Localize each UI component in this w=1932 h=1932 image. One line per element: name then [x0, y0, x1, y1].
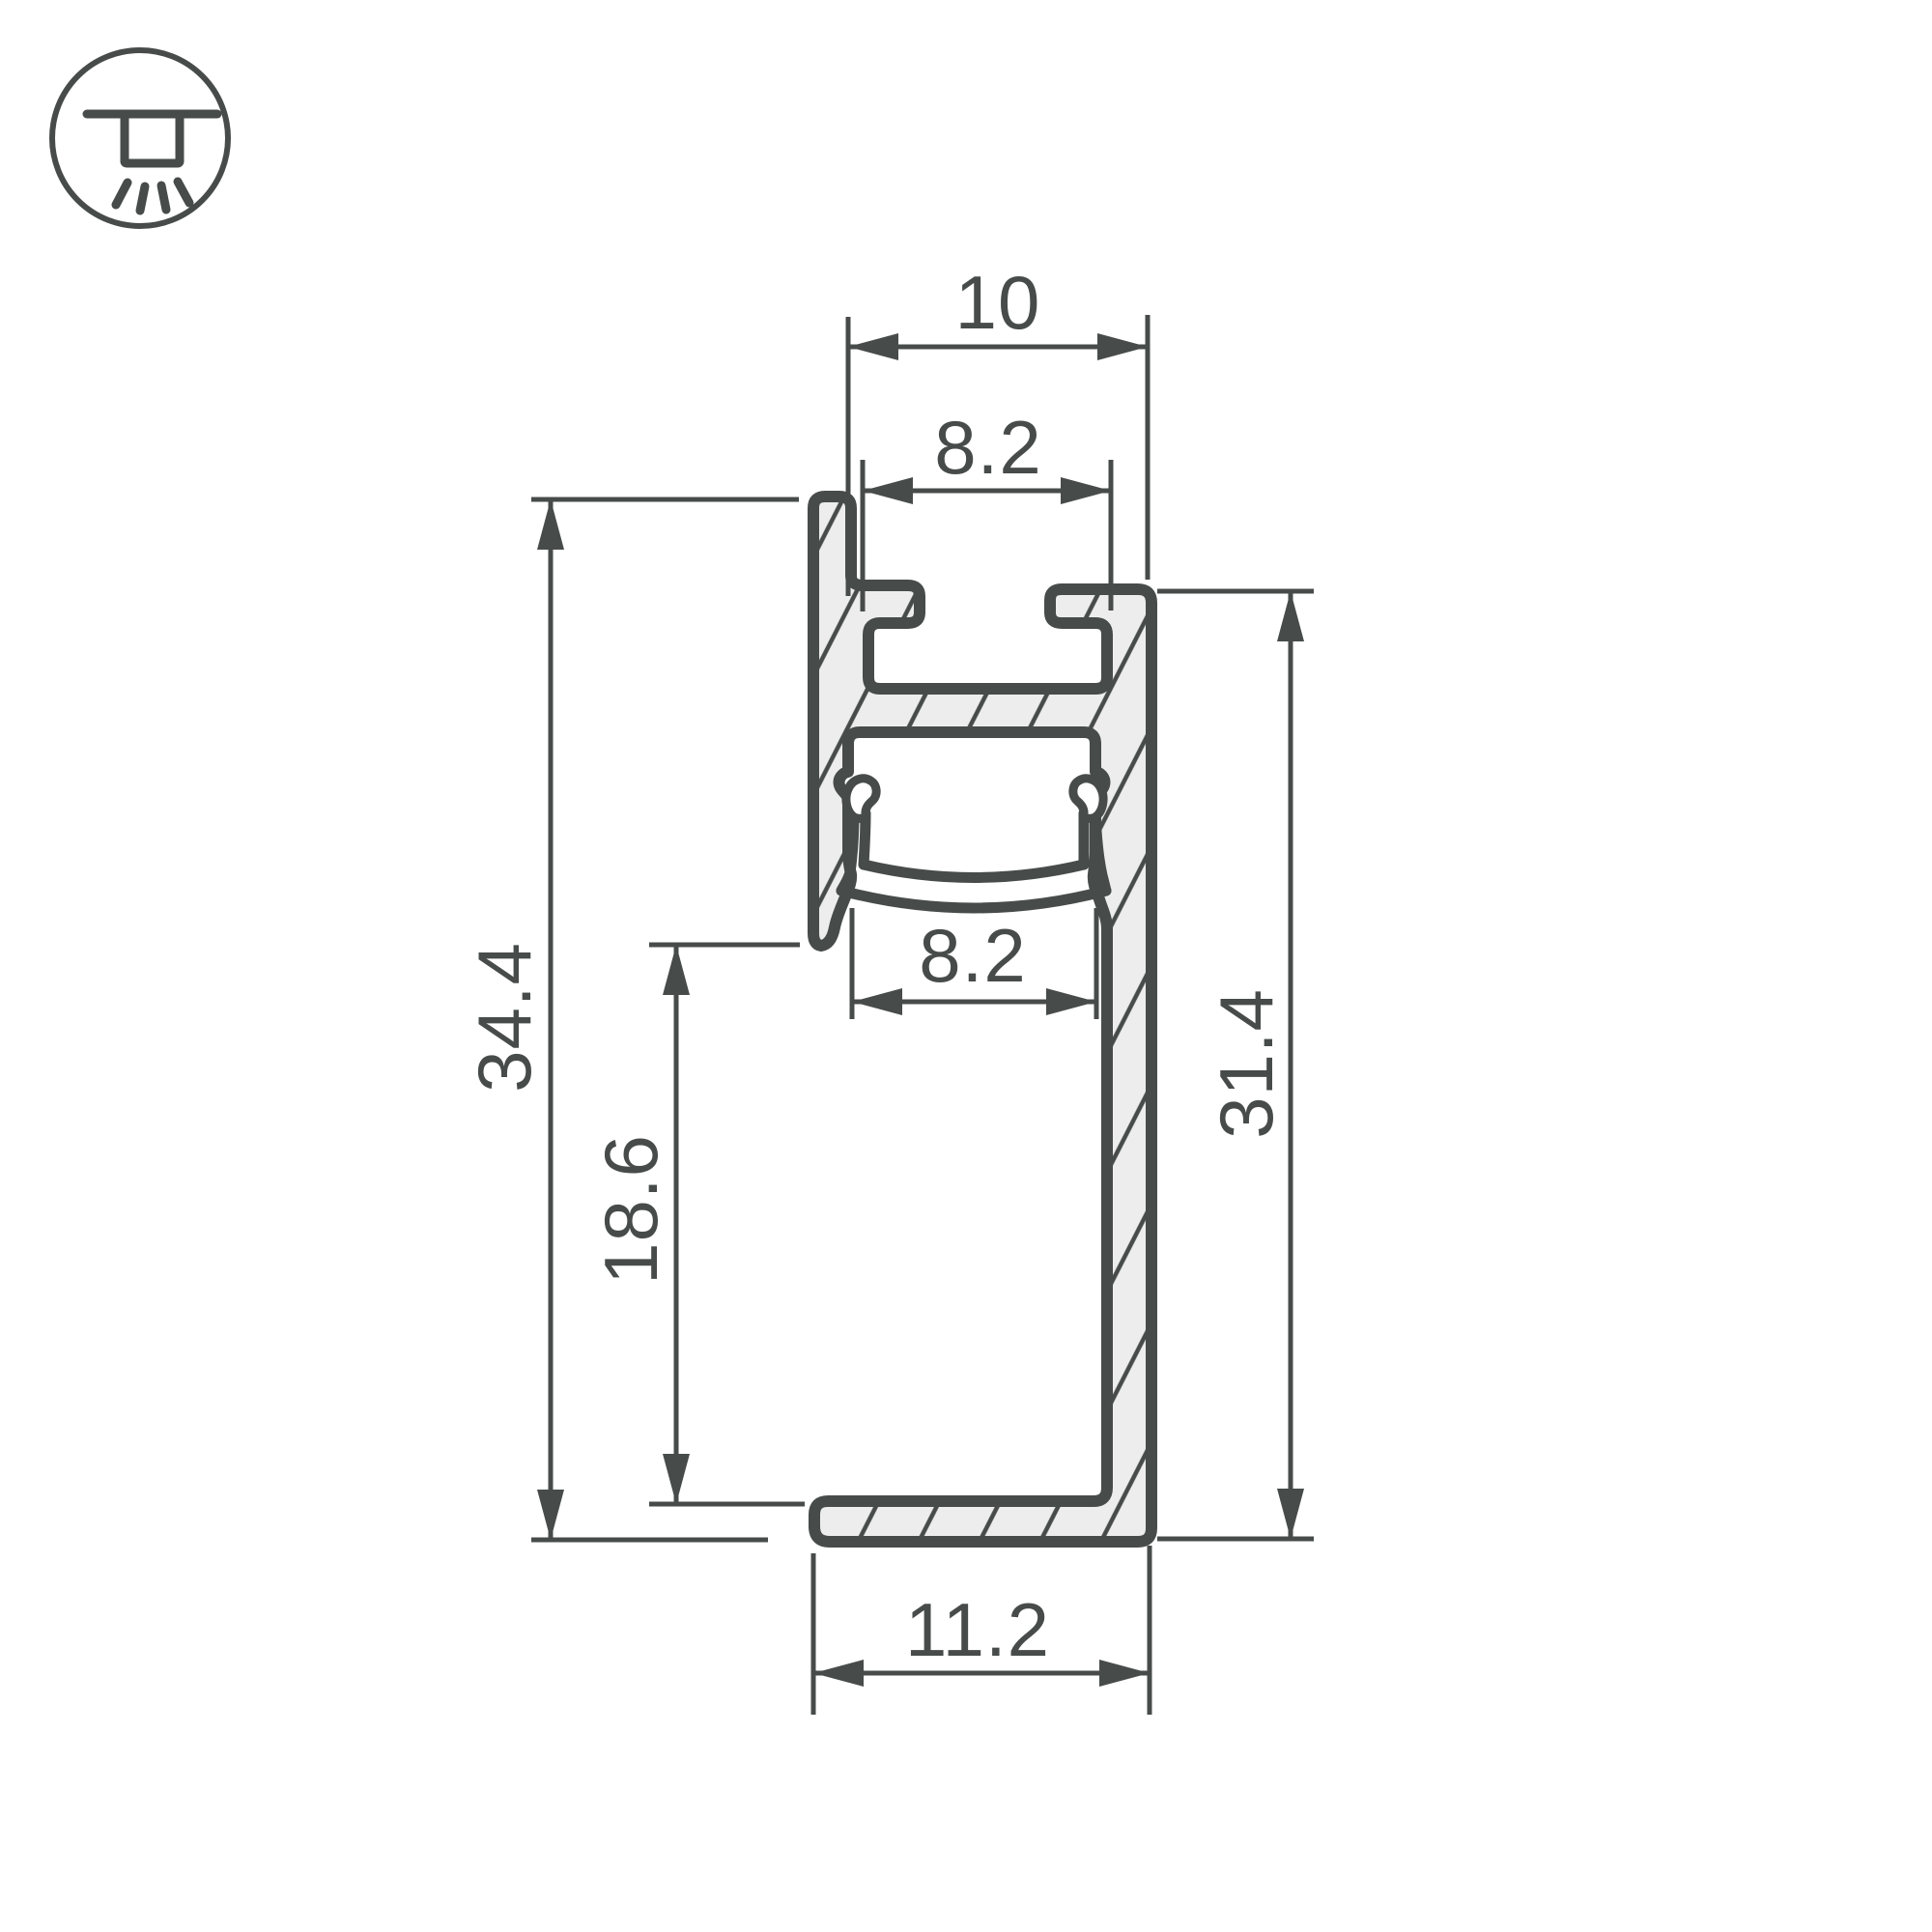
- profile-cross-section: [813, 497, 1151, 1542]
- diffuser-bottom-outer-edge: [841, 891, 1106, 908]
- dim-label-top-slot-width: 8.2: [934, 405, 1041, 490]
- aluminum-body: [813, 497, 1151, 1542]
- technical-drawing-svg: 10 8.2 8.2 34.4 18.6: [0, 0, 1932, 1932]
- mount-type-icon: [52, 50, 228, 226]
- dim-label-left-leg-height: 18.6: [588, 1134, 673, 1285]
- dim-label-right-wall-height: 31.4: [1204, 988, 1289, 1139]
- dim-label-led-slot-width: 8.2: [919, 913, 1026, 998]
- dimension-left-leg-height: 18.6: [588, 945, 805, 1504]
- diffuser-right-clip: [1073, 779, 1103, 818]
- dim-label-base-width: 11.2: [905, 1587, 1050, 1672]
- diffuser-bottom-inner-edge: [864, 865, 1084, 878]
- dimension-right-wall-height: 31.4: [1157, 591, 1314, 1539]
- drawing-canvas: 10 8.2 8.2 34.4 18.6: [0, 0, 1932, 1932]
- dimension-overall-height: 34.4: [462, 499, 799, 1540]
- dim-label-top-outer-width: 10: [955, 260, 1041, 345]
- dim-label-overall-height: 34.4: [462, 942, 547, 1093]
- dimension-base-width: 11.2: [813, 1546, 1150, 1715]
- diffuser-cover: [841, 779, 1106, 908]
- diffuser-left-clip: [846, 779, 876, 818]
- dimension-led-slot-width: 8.2: [852, 908, 1096, 1019]
- recessed-ceiling-light-icon: [87, 114, 217, 211]
